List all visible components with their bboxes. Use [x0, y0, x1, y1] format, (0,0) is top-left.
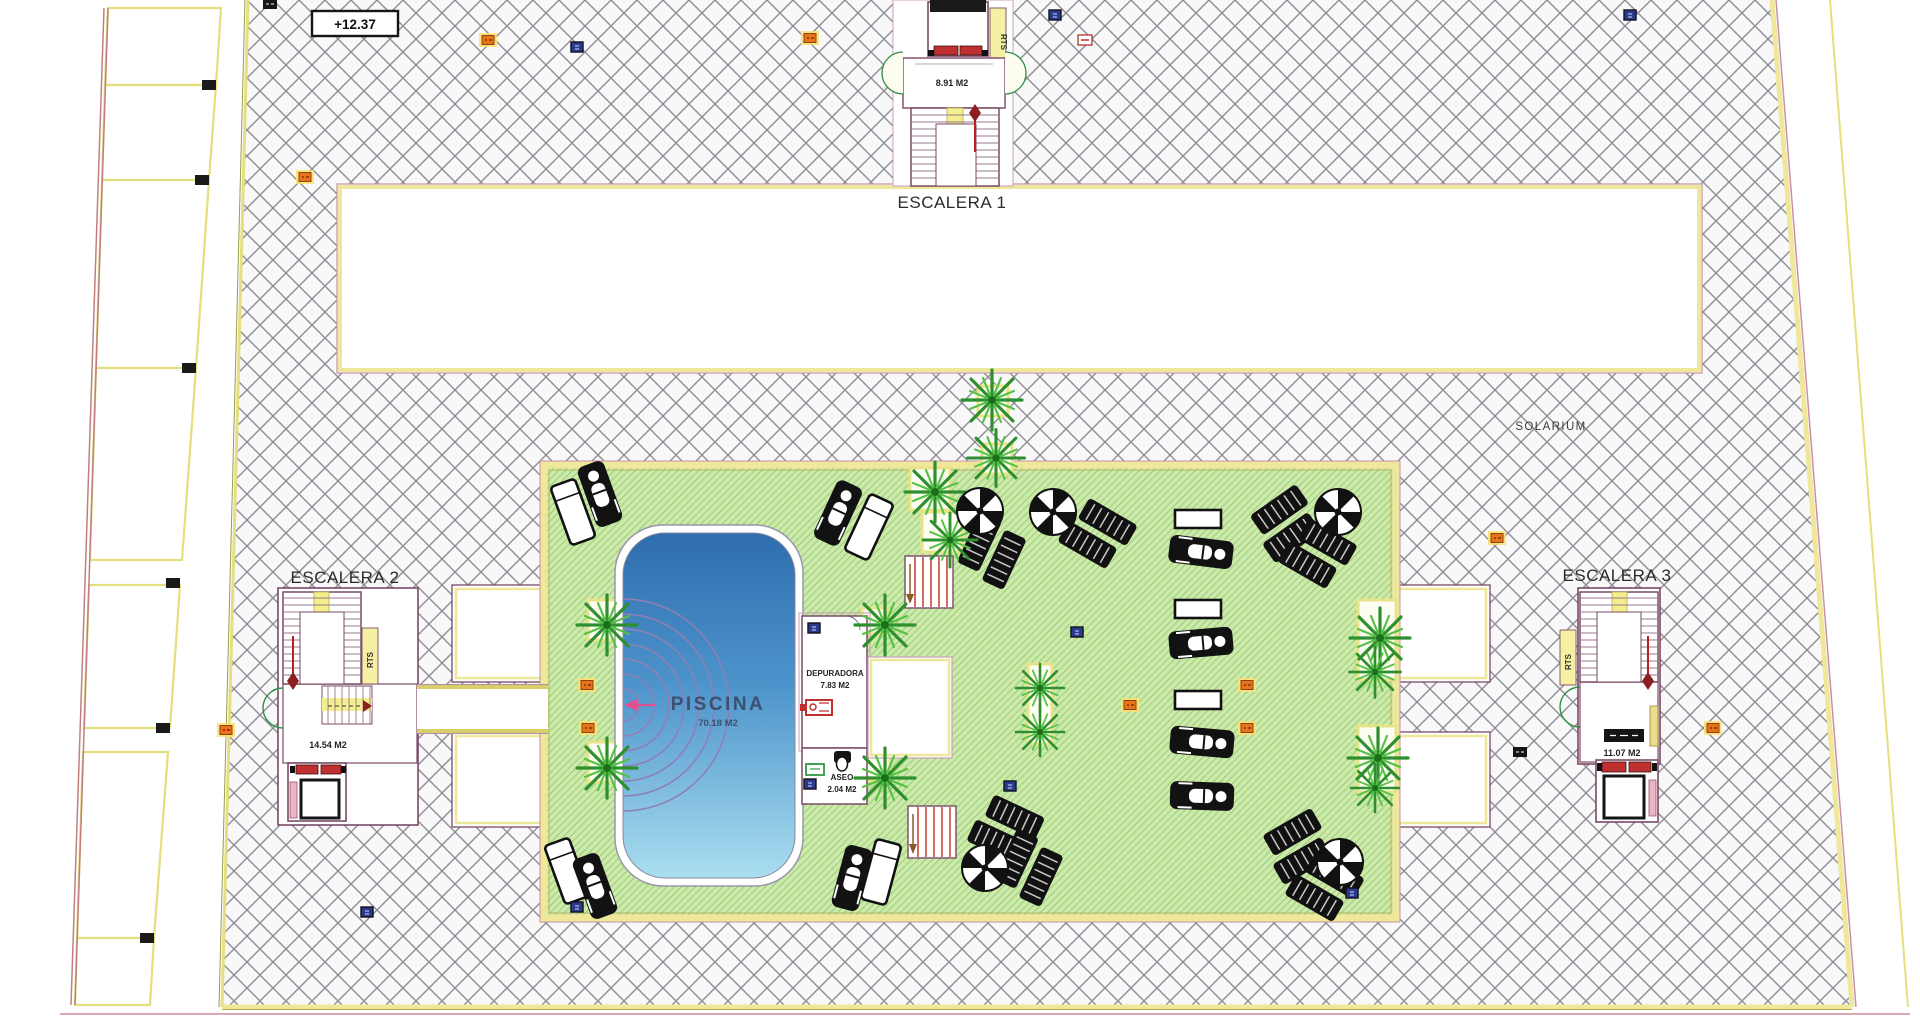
palm-tree-icon [1016, 664, 1064, 712]
escalera3-area-label: 11.07 M2 [1603, 748, 1640, 758]
palm-tree-icon [968, 430, 1025, 487]
marker-tag-orange [296, 170, 314, 184]
rooftop-plan-svg: PISCINA 70.18 M2 DEPURADORA 7.83 M2 ASEO… [0, 0, 1920, 1024]
marker-tag-navy [1004, 781, 1016, 791]
palm-tree-icon [855, 595, 915, 655]
escalera2-core: RTS 14.54 M2 [263, 588, 437, 825]
marker-tag-orange [579, 721, 597, 735]
escalera3-elevator [1596, 760, 1658, 822]
depuradora-room: DEPURADORA 7.83 M2 [799, 613, 870, 751]
marker-tag-orange [479, 33, 497, 47]
marker-tag-black [263, 0, 277, 9]
palm-tree-icon [855, 748, 915, 808]
marker-tag-orange [1121, 698, 1139, 712]
depuradora-label: DEPURADORA [806, 669, 864, 678]
palm-tree-icon [1016, 708, 1064, 756]
marker-tag-navy [1049, 10, 1061, 20]
floor-plan-canvas: PISCINA 70.18 M2 DEPURADORA 7.83 M2 ASEO… [0, 0, 1920, 1024]
escalera2-stair-flight [283, 592, 361, 690]
aseo-area-label: 2.04 M2 [828, 785, 857, 794]
escalera3-room-badge [1604, 729, 1644, 742]
marker-tag-red [1078, 35, 1092, 45]
palm-tree-icon [962, 370, 1022, 430]
escalera1-area-label: 8.91 M2 [936, 78, 969, 88]
escalera2-corridor [417, 685, 548, 734]
elevation-label: +12.37 [334, 17, 376, 32]
pool-label: PISCINA [671, 694, 766, 715]
sun-lounger-occupied [1169, 725, 1235, 758]
palm-tree-icon [1351, 764, 1399, 812]
left-balcony-strip [75, 8, 221, 1005]
marker-tag-navy [571, 42, 583, 52]
aseo-room: ASEO 2.04 M2 [802, 748, 867, 804]
palm-tree-icon [1350, 647, 1401, 698]
marker-tag-navy [808, 623, 820, 633]
side-table [1175, 691, 1221, 709]
walkway-skylight [868, 657, 952, 758]
marker-tag-orange [801, 31, 819, 45]
sun-lounger-occupied [1168, 626, 1234, 659]
escalera3-title: ESCALERA 3 [1563, 566, 1672, 585]
aseo-label: ASEO [831, 773, 854, 782]
pool-access-stairs [908, 806, 956, 858]
escalera1-elevator [928, 0, 988, 56]
marker-tag-navy [361, 907, 373, 917]
palm-tree-icon [577, 595, 637, 655]
escalera2-area-label: 14.54 M2 [309, 740, 347, 750]
escalera3-rts-label: RTS [1564, 653, 1573, 670]
escalera2-elevator [288, 763, 346, 821]
escalera2-rts-label: RTS [366, 651, 375, 668]
marker-tag-orange [1704, 721, 1722, 735]
marker-tag-navy [1071, 627, 1083, 637]
palm-tree-icon [905, 462, 965, 522]
parasol-icon [957, 488, 1003, 534]
marker-tag-orange [1238, 721, 1256, 735]
escalera2-lower-flight [322, 686, 372, 724]
escalera3-stair-flight [1580, 592, 1658, 690]
sink-icon [806, 764, 824, 775]
sun-lounger-occupied [1170, 781, 1235, 811]
marker-tag-navy [1346, 888, 1358, 898]
side-table [1175, 510, 1221, 528]
marker-tag-black [1513, 747, 1527, 757]
parasol-icon [962, 845, 1008, 891]
elevation-badge: +12.37 [312, 11, 398, 36]
parasol-icon [1030, 489, 1076, 535]
marker-tag-navy [1624, 10, 1636, 20]
pool-area-label: 70.18 M2 [698, 718, 738, 729]
pool-access-stairs [905, 556, 953, 608]
marker-tag-navy [804, 779, 816, 789]
parasol-icon [1315, 489, 1361, 535]
marker-tag-orange [1238, 678, 1256, 692]
escalera3-bench [1650, 706, 1658, 746]
marker-tag-orangered [217, 723, 235, 737]
side-table [1175, 600, 1221, 618]
marker-tag-orange [1488, 531, 1506, 545]
solarium-label: SOLARIUM [1515, 421, 1586, 433]
building-band [337, 184, 1702, 373]
parasol-icon [1317, 839, 1363, 885]
marker-tag-orange [578, 678, 596, 692]
depuradora-area-label: 7.83 M2 [821, 681, 850, 690]
escalera1-core: RTS 8.91 M2 [882, 0, 1026, 186]
escalera1-title: ESCALERA 1 [898, 193, 1007, 212]
marker-tag-navy [571, 902, 583, 912]
escalera2-title: ESCALERA 2 [291, 568, 400, 587]
palm-tree-icon [577, 738, 637, 798]
escalera1-rts-label: RTS [999, 34, 1008, 51]
escalera1-stair-flight [911, 104, 999, 186]
